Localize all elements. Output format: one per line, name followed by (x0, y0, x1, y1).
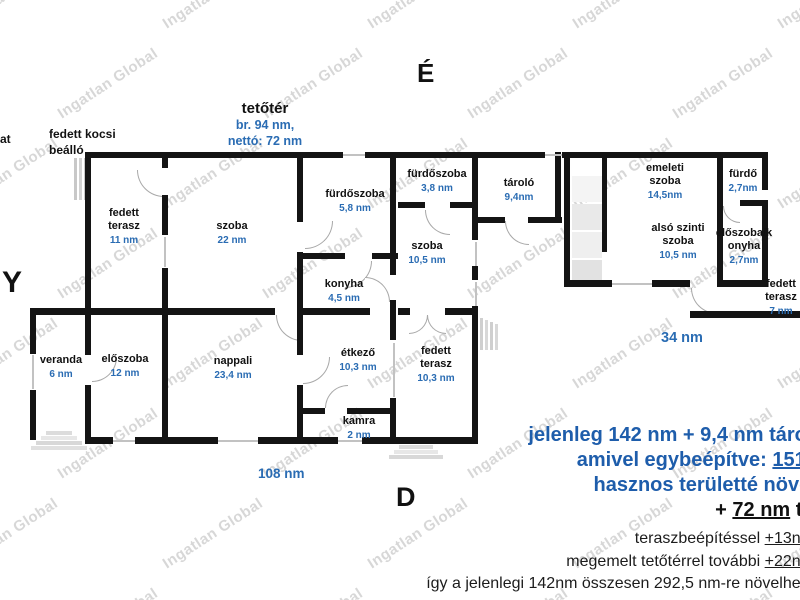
wall (562, 152, 768, 158)
watermark-text: Ingatlan Global (160, 0, 266, 32)
wall (602, 152, 607, 252)
watermark-text: Ingatlan Global (775, 0, 800, 32)
promo-line3: hasznos területté növelhető (218, 473, 800, 498)
footnote-line2: megemelt tetőtérrel további +22nm (174, 551, 800, 574)
room-area: 22 nm (200, 234, 264, 247)
room-area: 3,8 nm (399, 182, 475, 195)
door-arc (305, 221, 333, 249)
room-area: 4,5 nm (314, 292, 374, 305)
watermark-text: Ingatlan Global (465, 45, 571, 122)
footnotes: teraszbeépítéssel +13nm megemelt tetőtér… (174, 528, 800, 596)
window-marker (475, 242, 477, 266)
wall (30, 308, 36, 354)
room-area: 10,3 nm (408, 372, 464, 385)
wall (85, 152, 343, 158)
room-area: 12 nm (94, 367, 156, 380)
room-area: 6 nm (34, 368, 88, 381)
wall (303, 408, 325, 414)
watermark-text: Ingatlan Global (55, 45, 161, 122)
window-marker (545, 154, 562, 156)
promo-line4: + 72 nm tetőtér (218, 498, 800, 523)
wall (297, 152, 303, 222)
wall (162, 152, 168, 168)
attic-gross-area: br. 94 nm, (205, 117, 325, 133)
room-name: szoba (200, 220, 264, 233)
door-arc (409, 315, 428, 334)
wall (162, 195, 168, 235)
stairs (572, 232, 602, 258)
room-area: 14,5nm (633, 189, 697, 202)
wall (30, 390, 36, 440)
wall (564, 280, 612, 287)
wall (303, 308, 370, 315)
wall (652, 280, 690, 287)
room-label-tarolo: tároló9,4nm (488, 177, 550, 204)
carport-label: fedett kocsi beálló (49, 126, 116, 158)
wall (297, 252, 303, 355)
room-name: emeleti (633, 162, 697, 175)
door-arc (427, 315, 446, 334)
wall (162, 315, 168, 437)
wall (85, 437, 113, 444)
room-area: 7 nm (756, 305, 800, 318)
footnote-line1: teraszbeépítéssel +13nm (174, 528, 800, 551)
watermark-text: Ingatlan Global (365, 0, 471, 32)
door-arc (137, 170, 164, 197)
room-label-eloszoba: előszoba12 nm (94, 353, 156, 380)
door-arc (425, 210, 450, 235)
attic-name: tetőtér (205, 100, 325, 117)
wall (85, 152, 91, 314)
room-label-emeleti-szoba: emeletiszoba14,5nm (633, 162, 697, 202)
stairs (31, 446, 87, 450)
wall (472, 152, 478, 240)
window-marker (612, 283, 652, 285)
stairs (36, 441, 82, 445)
room-area: 10,5 nm (394, 254, 460, 267)
room-area: 5,8 nm (318, 202, 392, 215)
window-marker (343, 154, 365, 156)
room-name: fedett (94, 207, 154, 220)
attic-label: tetőtér br. 94 nm, nettó: 72 nm (205, 100, 325, 149)
compass-north: É (417, 58, 434, 89)
watermark-text: Ingatlan Global (0, 0, 61, 32)
room-name: előszoba/k (708, 227, 780, 240)
stairs (490, 322, 493, 350)
room-name: étkező (326, 347, 390, 360)
wall (390, 315, 396, 340)
wall (398, 202, 425, 208)
wall (478, 217, 505, 223)
compass-west-fragment: Y (2, 266, 22, 300)
room-label-furdoszoba-38: fürdőszoba3,8 nm (399, 168, 475, 195)
wall (398, 308, 410, 315)
room-label-szoba-22: szoba22 nm (200, 220, 264, 247)
room-name: terasz (756, 291, 800, 304)
room-name: konyha (314, 278, 374, 291)
carport-label-line1: fedett kocsi (49, 126, 116, 142)
room-name: onyha (708, 240, 780, 253)
wall (162, 268, 168, 314)
room-name: terasz (94, 220, 154, 233)
room-name: szoba (633, 175, 697, 188)
room-area: 10,3 nm (326, 361, 390, 374)
room-name: fedett (756, 278, 800, 291)
room-area: 9,4nm (488, 191, 550, 204)
wall (85, 315, 91, 355)
window-marker (113, 440, 135, 442)
wall (472, 266, 478, 280)
promo-line2: amivel egybeépítve: 151,4 nm (218, 448, 800, 473)
room-name: tároló (488, 177, 550, 190)
wall (300, 253, 345, 259)
room-label-eloszoba-konyha: előszoba/konyha2,7nm (708, 227, 780, 267)
stairs (572, 204, 602, 230)
room-label-terasz-e: fedettterasz7 nm (756, 278, 800, 318)
watermark-text: Ingatlan Global (0, 495, 61, 572)
room-label-nappali: nappali23,4 nm (201, 355, 265, 382)
window-marker (164, 237, 166, 267)
stairs (41, 436, 77, 440)
room-area: 2,7nm (708, 254, 780, 267)
door-arc (723, 206, 740, 223)
stairs (495, 324, 498, 350)
stairs (572, 176, 602, 202)
room-area: 2,7nm (716, 182, 770, 195)
stairs (572, 260, 602, 282)
room-label-furdoszoba-58: fürdőszoba5,8 nm (318, 188, 392, 215)
stairs (485, 320, 488, 350)
stairs (74, 158, 77, 200)
window-marker (475, 282, 477, 306)
window-marker (393, 343, 395, 397)
carport-label-line2: beálló (49, 142, 116, 158)
wall (135, 437, 218, 444)
watermark-text: Ingatlan Global (670, 45, 776, 122)
stairs (79, 158, 82, 200)
wall (564, 152, 570, 287)
room-name: fedett (408, 345, 464, 358)
watermark-text: Ingatlan Global (55, 585, 161, 600)
room-label-terasz-nw: fedettterasz11 nm (94, 207, 154, 247)
promo-line1: jelenleg 142 nm + 9,4 nm tárolóval, (218, 423, 800, 448)
promo-text: jelenleg 142 nm + 9,4 nm tárolóval, amiv… (218, 423, 800, 523)
attic-net-area: nettó: 72 nm (205, 133, 325, 149)
wall (390, 300, 396, 315)
stairs (46, 431, 72, 435)
room-name: szoba (394, 240, 460, 253)
room-name: fürdőszoba (318, 188, 392, 201)
room-area: 11 nm (94, 234, 154, 247)
footnote-line3: így a jelenlegi 142nm összesen 292,5 nm-… (174, 573, 800, 596)
room-name: fürdő (716, 168, 770, 181)
room-label-terasz-s: fedettterasz10,3 nm (408, 345, 464, 385)
room-name: nappali (201, 355, 265, 368)
door-arc (325, 385, 348, 408)
room-name: fürdőszoba (399, 168, 475, 181)
wall (85, 385, 91, 437)
wall (555, 152, 561, 223)
room-label-szoba-105: szoba10,5 nm (394, 240, 460, 267)
street-label-fragment: at (0, 132, 11, 146)
room-name: előszoba (94, 353, 156, 366)
room-label-konyha: konyha4,5 nm (314, 278, 374, 305)
room-label-etkezo: étkező10,3 nm (326, 347, 390, 374)
watermark-text: Ingatlan Global (570, 315, 676, 392)
floor-plan: Ingatlan GlobalIngatlan GlobalIngatlan G… (0, 0, 800, 600)
room-area: 23,4 nm (201, 369, 265, 382)
watermark-text: Ingatlan Global (775, 135, 800, 212)
room-name: veranda (34, 354, 88, 367)
room-name: terasz (408, 358, 464, 371)
room-label-veranda: veranda6 nm (34, 354, 88, 381)
wall (347, 408, 392, 414)
door-arc (505, 221, 529, 245)
room-label-furdo: fürdő2,7nm (716, 168, 770, 195)
yard-area-right: 34 nm (661, 330, 703, 346)
watermark-text: Ingatlan Global (775, 315, 800, 392)
stairs (480, 318, 483, 350)
watermark-text: Ingatlan Global (570, 0, 676, 32)
wall (30, 308, 275, 315)
